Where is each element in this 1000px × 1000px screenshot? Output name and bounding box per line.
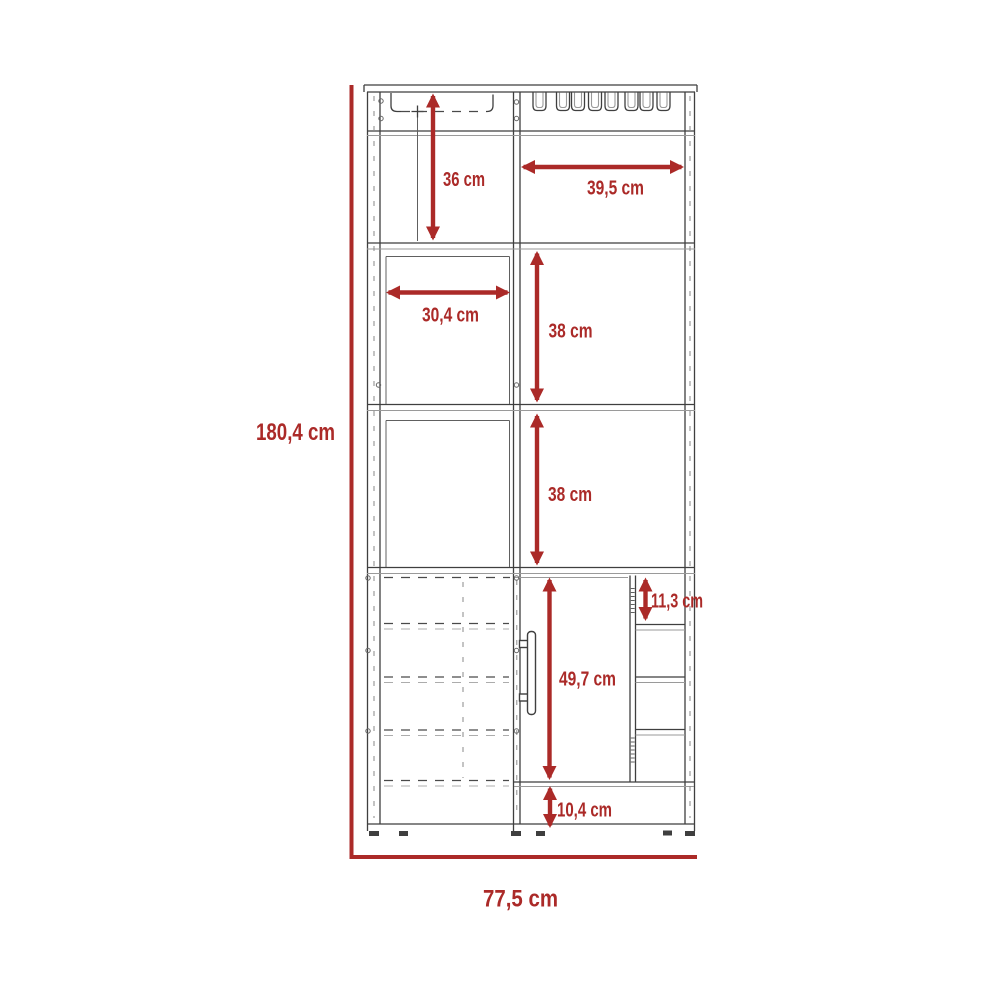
hidden-shelves-dark [384,578,510,781]
dim-left-shelf-width: 30,4 cm [389,293,508,327]
dim-label-10-4: 10,4 cm [557,800,612,822]
overall-dimension-lines [352,85,698,857]
dim-label-38-upper: 38 cm [549,321,593,343]
dim-label-36: 36 cm [443,169,485,191]
feet [369,831,695,837]
cabinet-dimension-diagram: 180,4 cm 77,5 cm 36 cm 39,5 cm 30,4 cm 3… [0,0,1000,1000]
dim-label-overall-height: 180,4 cm [256,419,335,446]
connector-marks [366,99,519,733]
handle-cutout-brackets [391,93,493,118]
dim-right-upper-height: 38 cm [537,254,593,401]
flap-handle-cutout [391,93,493,118]
cabinet-frame-dark-lines [364,85,697,831]
cabinet-drawing [364,85,697,836]
dimensions: 180,4 cm 77,5 cm 36 cm 39,5 cm 30,4 cm 3… [256,85,703,913]
dim-label-30-4: 30,4 cm [422,305,479,327]
dim-overall: 180,4 cm 77,5 cm [256,85,697,913]
door-handle [520,632,536,715]
dim-base-height: 10,4 cm [550,789,612,826]
dim-right-middle-height: 38 cm [537,416,592,563]
dim-label-11-3: 11,3 cm [651,591,703,613]
dim-label-38-middle: 38 cm [548,484,592,506]
handle-bar [528,632,536,715]
stemware-rack [533,93,670,111]
dim-lower-cabinet-height: 49,7 cm [550,580,617,778]
diagram-canvas: 180,4 cm 77,5 cm 36 cm 39,5 cm 30,4 cm 3… [0,0,1000,1000]
dim-top-right-width: 39,5 cm [524,167,682,200]
interior-detail-lines [386,117,635,762]
hidden-shelves-light [384,629,509,786]
handle-bracket-top [520,641,529,648]
dim-label-39-5: 39,5 cm [587,178,644,200]
handle-bracket-bottom [520,694,529,701]
dim-top-left-height: 36 cm [433,96,485,238]
dim-label-overall-width: 77,5 cm [483,886,558,913]
dim-label-49-7: 49,7 cm [559,669,616,691]
